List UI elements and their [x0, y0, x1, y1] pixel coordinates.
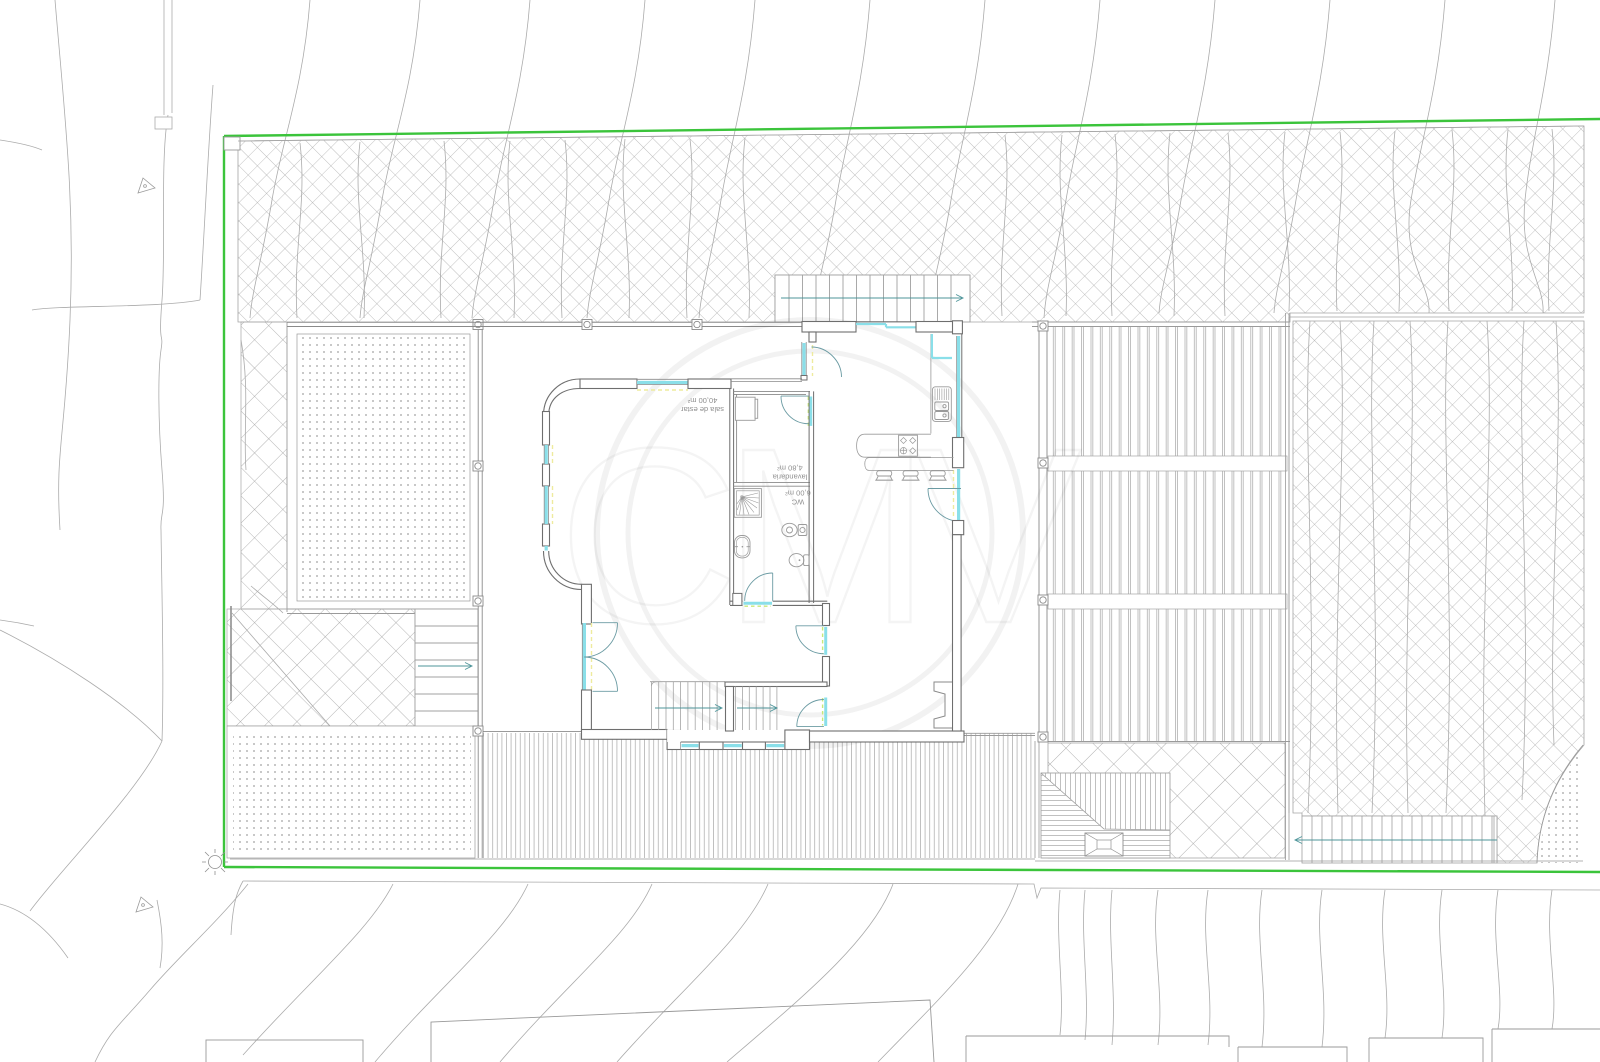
svg-text:40,00 m²: 40,00 m²: [687, 396, 717, 405]
svg-text:sala de estar: sala de estar: [681, 405, 724, 414]
svg-text:WC: WC: [791, 498, 804, 507]
svg-text:4,80 m²: 4,80 m²: [777, 464, 803, 473]
svg-text:6,00 m²: 6,00 m²: [785, 489, 811, 498]
svg-text:lavandaria: lavandaria: [772, 473, 807, 482]
svg-text:CMV: CMV: [558, 396, 1081, 675]
